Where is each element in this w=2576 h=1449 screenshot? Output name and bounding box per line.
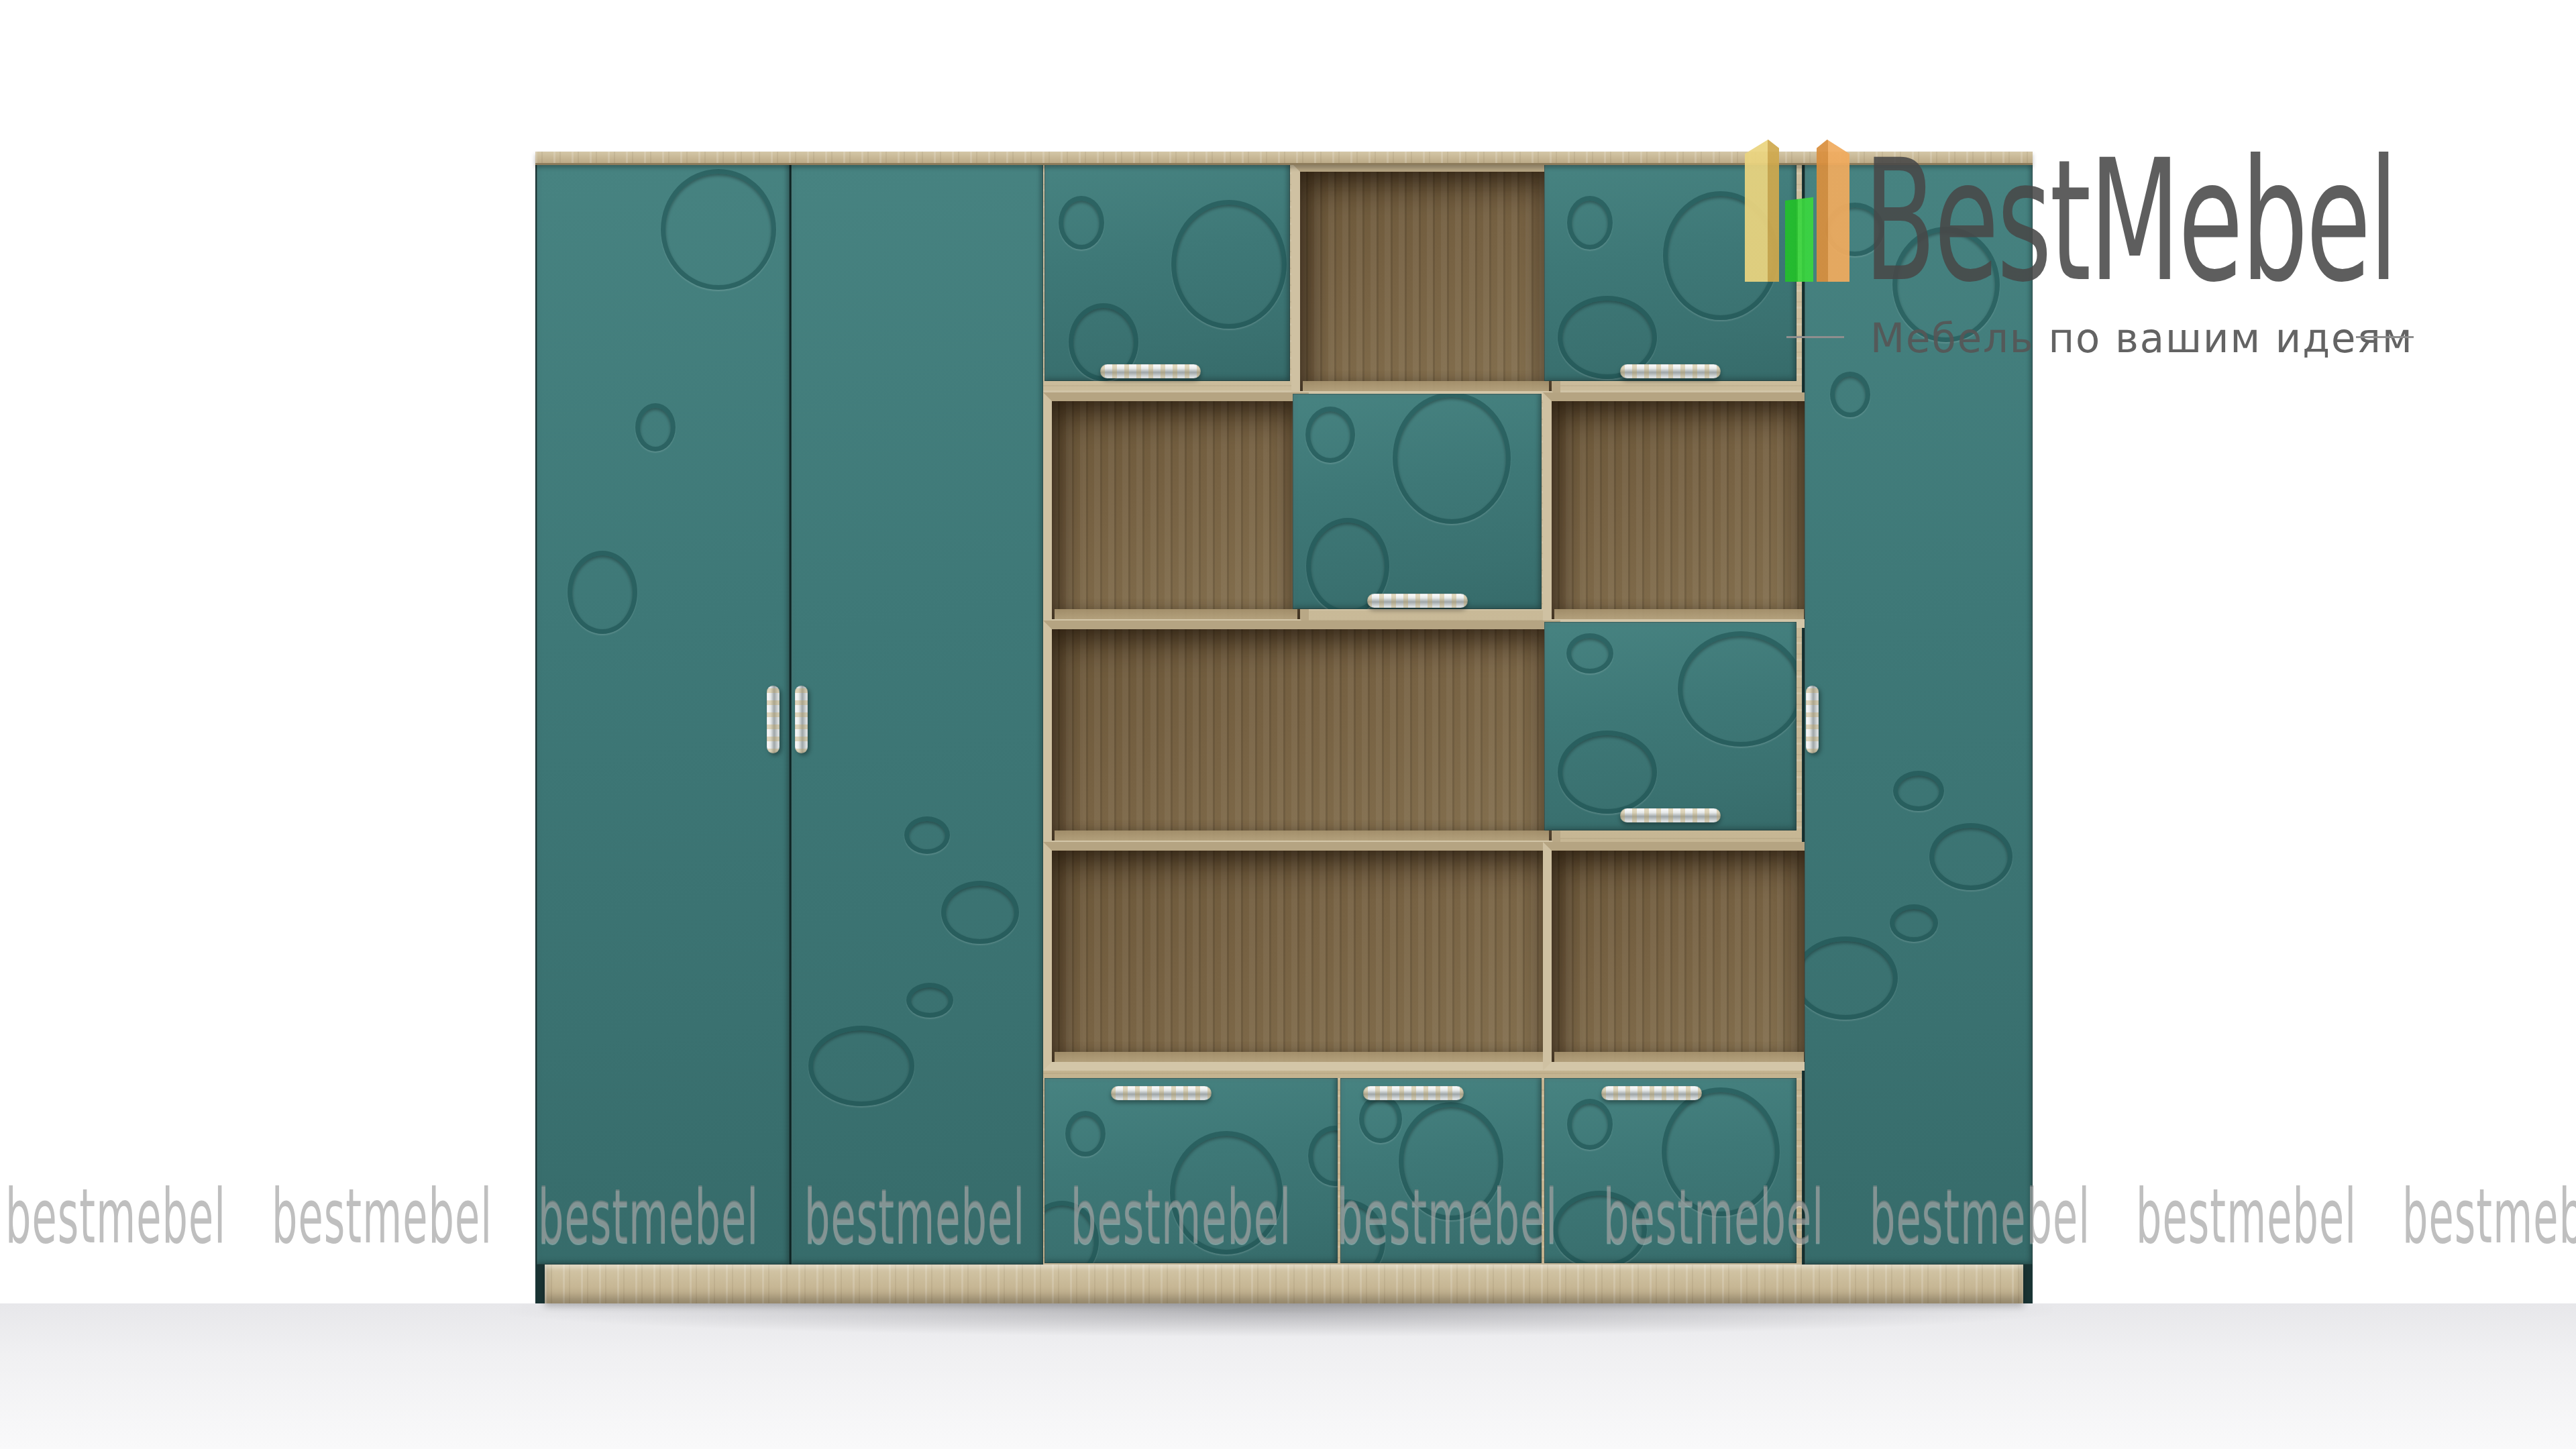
shelf-door-bottom-2-ring-1 [1359,1095,1402,1143]
open-shelf-top-center [1291,163,1560,400]
handle-wardrobe-left-door-2 [795,686,808,753]
watermark-text: bestmebel [5,1173,226,1260]
shelf-door-mid-center-ring-2 [1393,394,1511,524]
watermark-text: bestmebel [1603,1173,1824,1260]
shelf-door-bottom-1-ring-4 [1308,1126,1338,1186]
ribbon-yellow [1745,140,1779,282]
tagline-rule-left [1786,336,1844,338]
handle-shelf-bottom-1 [1111,1086,1212,1100]
tagline-rule-right [2356,336,2414,338]
countertop-strip [535,152,2033,165]
watermark-text: bestmebel [1071,1173,1291,1260]
handle-shelf-mid-center [1367,594,1468,608]
brand-name: BestMebel [1864,158,2396,284]
wardrobe-right-door-ring-4 [1893,771,1944,811]
open-shelf-low-right [1543,842,1815,1071]
open-shelf-wide-upper [1043,621,1560,849]
handle-wardrobe-left-door-1 [767,686,780,753]
wardrobe-left-door-2-ring-3 [906,983,953,1018]
watermark-text: bestmebel [1337,1173,1558,1260]
furniture-wall-unit [535,152,2033,1303]
wardrobe-right-door-ring-6 [1890,904,1938,942]
watermark-text: bestmebel [272,1173,492,1260]
shelf-door-mid-right [1544,622,1796,830]
watermark-text: bestmebel [538,1173,759,1260]
wardrobe-right-door-ring-3 [1830,372,1870,417]
handle-shelf-top-left [1100,364,1201,378]
open-shelf-mid-left [1043,392,1309,628]
shelf-door-mid-right-ring-3 [1558,731,1657,814]
open-shelf-mid-right [1543,392,1815,628]
product-render-stage: BestMebel Мебель по вашим идеям bestmebe… [0,0,2576,1449]
shelf-door-mid-center-ring-1 [1305,407,1355,463]
ribbon-orange [1817,140,1849,282]
brand-tagline: Мебель по вашим идеям [1870,314,2413,362]
wardrobe-right-door-ring-5 [1929,823,2012,890]
shelf-door-top-left-ring-1 [1059,196,1104,250]
handle-shelf-bottom-2 [1363,1086,1464,1100]
shelf-door-bottom-3-ring-1 [1567,1099,1613,1150]
shelf-door-mid-right-ring-1 [1566,633,1613,674]
shelf-door-mid-right-ring-2 [1678,631,1796,747]
wardrobe-right-door-ring-7 [1805,936,1898,1020]
wardrobe-left-door-1-ring-2 [635,403,676,451]
shelf-door-mid-center [1293,394,1542,609]
shelf-door-top-left-ring-2 [1171,200,1287,329]
seam-left-wardrobe-doors [790,163,792,1265]
open-shelf-wide-lower [1043,842,1560,1071]
plinth [545,1265,2023,1303]
watermark-text: bestmebel [2136,1173,2357,1260]
handle-wardrobe-right-door [1806,686,1819,753]
wardrobe-left-door-1-ring-1 [661,169,776,290]
shelf-door-bottom-1-ring-1 [1065,1111,1106,1157]
wardrobe-left-door-2-ring-4 [808,1026,914,1106]
wardrobe-left-door-1-ring-3 [568,551,637,634]
handle-shelf-bottom-3 [1601,1086,1702,1100]
watermark-text: bestmebel [1870,1173,2090,1260]
wardrobe-left-door-1 [537,163,790,1265]
shelf-door-top-right-ring-1 [1567,196,1613,250]
ribbon-green [1785,197,1813,282]
handle-shelf-top-right [1620,364,1721,378]
shelf-door-top-left [1044,164,1290,381]
watermark-text: bestmebel [804,1173,1025,1260]
handle-shelf-mid-right [1620,808,1721,822]
wardrobe-left-door-2-ring-2 [941,881,1019,944]
wardrobe-left-door-2 [791,163,1043,1265]
watermark-text: bestmebel [2402,1173,2576,1260]
wardrobe-left-door-2-ring-1 [904,816,950,854]
